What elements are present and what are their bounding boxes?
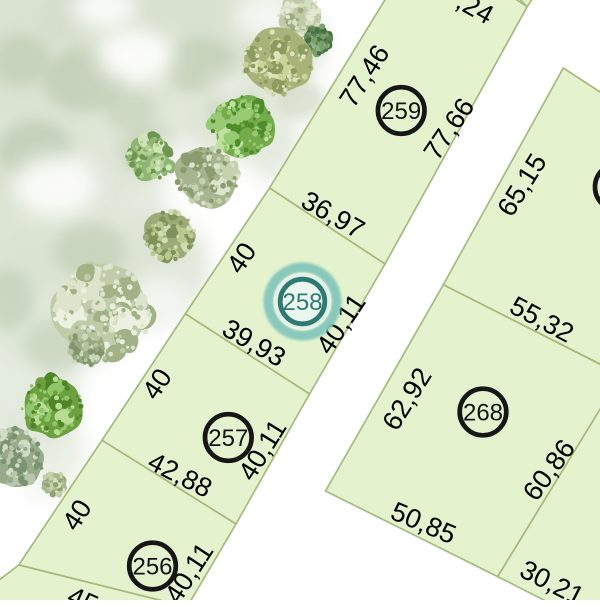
svg-text:258: 258 xyxy=(282,289,322,316)
svg-text:256: 256 xyxy=(132,554,172,581)
svg-text:268: 268 xyxy=(463,400,503,427)
svg-text:257: 257 xyxy=(208,425,248,452)
svg-text:259: 259 xyxy=(381,98,421,125)
